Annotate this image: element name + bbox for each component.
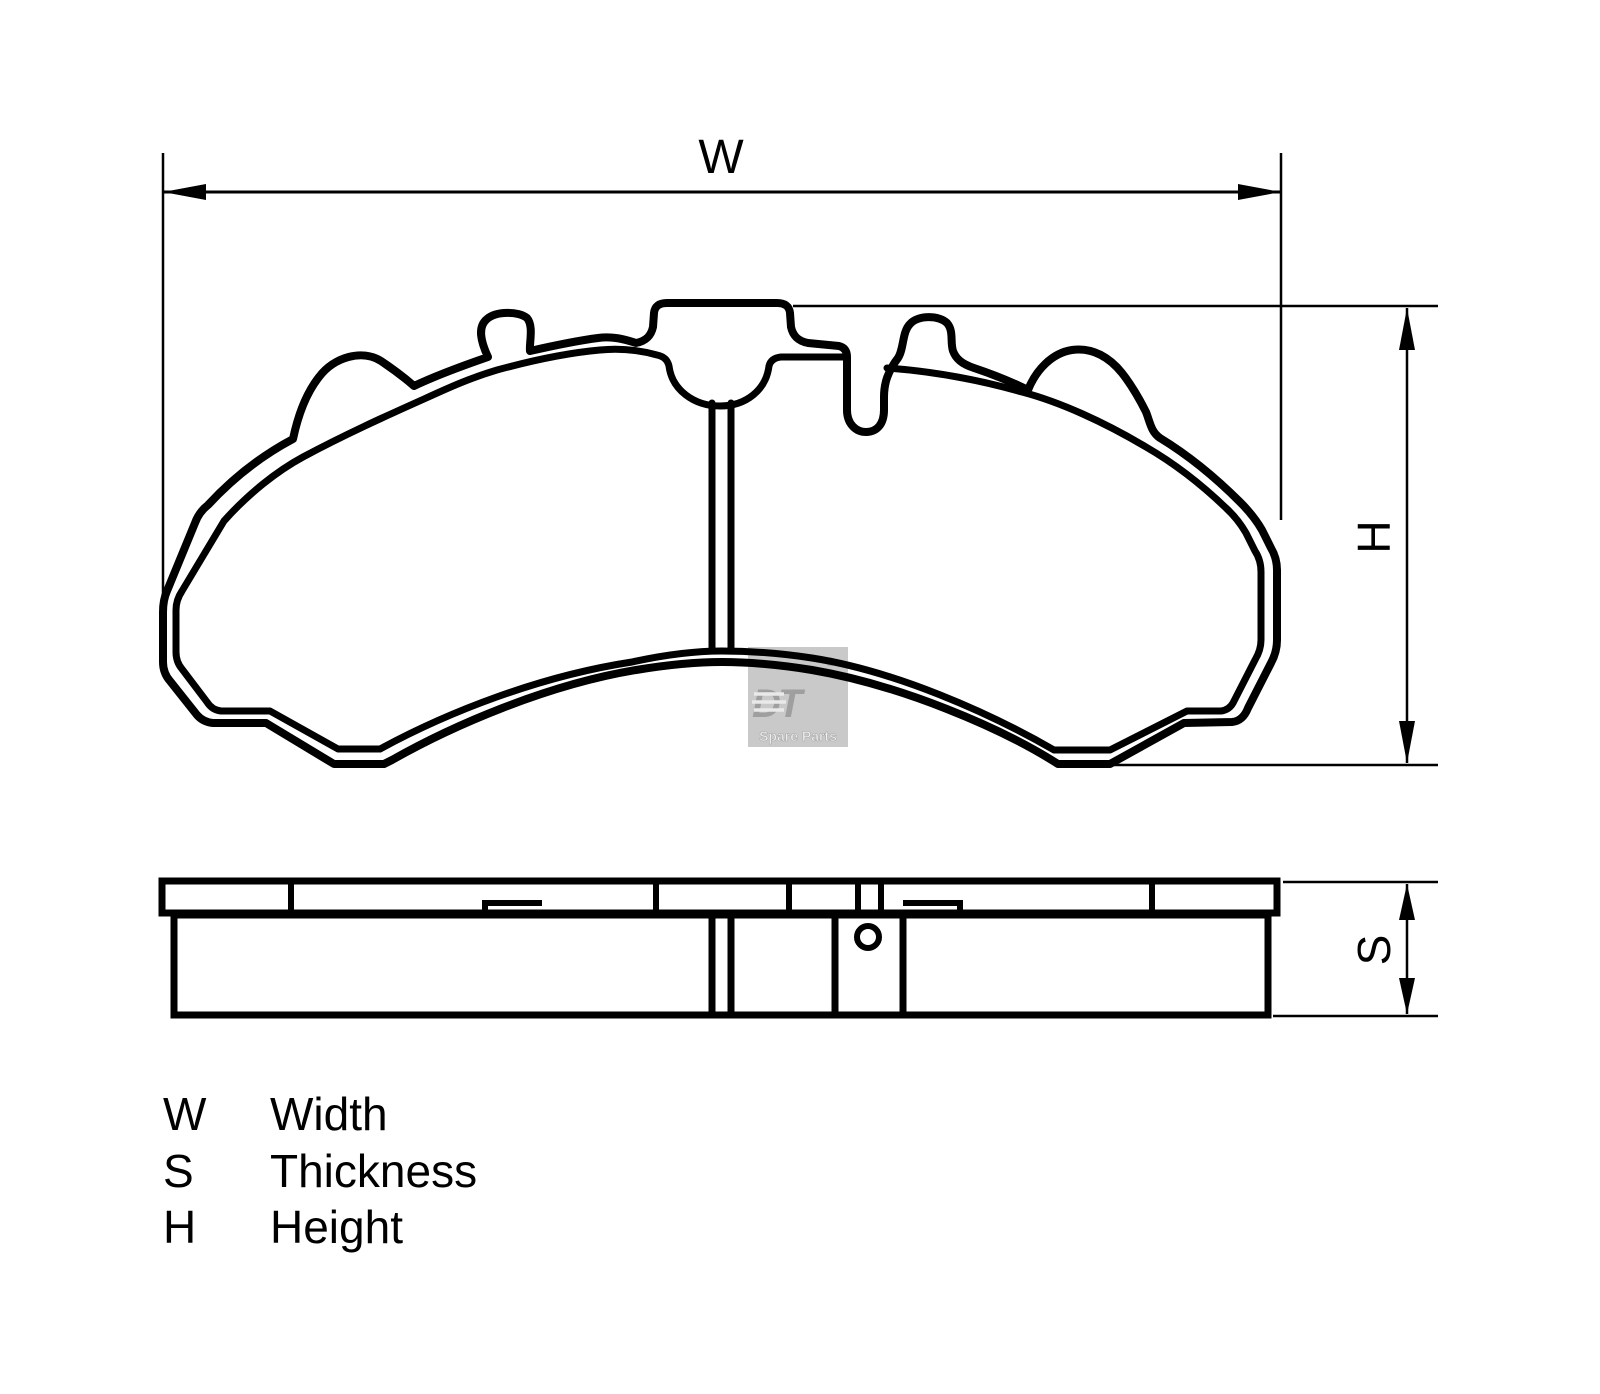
- arrow-up-icon: [1399, 884, 1415, 920]
- legend-symbol: S: [163, 1148, 270, 1195]
- legend-row-thickness: S Thickness: [163, 1148, 477, 1195]
- arrow-right-icon: [1238, 184, 1281, 200]
- height-dimension-label: H: [1348, 520, 1400, 553]
- thickness-dimension-label: S: [1348, 935, 1400, 966]
- legend-label: Height: [270, 1204, 403, 1251]
- arrow-up-icon: [1399, 308, 1415, 350]
- pad-front-view: [163, 303, 1277, 764]
- friction-material-block: [174, 915, 1268, 1015]
- watermark-tagline: Spare Parts: [759, 728, 837, 744]
- pad-center-slot: [712, 403, 731, 650]
- legend-label: Thickness: [270, 1148, 477, 1195]
- legend-row-width: W Width: [163, 1091, 388, 1138]
- pad-friction-material-outline: [176, 349, 1261, 750]
- wear-indicator-hole: [857, 926, 879, 948]
- strip-segment-lines: [291, 881, 1152, 913]
- legend-row-height: H Height: [163, 1204, 403, 1251]
- pad-side-view: [162, 881, 1277, 1015]
- width-dimension-label: W: [698, 131, 744, 184]
- watermark-brand-logo: DT: [752, 682, 806, 726]
- arrow-left-icon: [163, 184, 206, 200]
- backing-plate-strip: [162, 881, 1277, 913]
- brake-pad-technical-drawing: DT ® Spare Parts: [0, 0, 1600, 1394]
- legend-label: Width: [270, 1091, 388, 1138]
- legend-symbol: W: [163, 1091, 270, 1138]
- pad-backing-plate-outline: [163, 303, 1277, 764]
- arrow-down-icon: [1399, 721, 1415, 763]
- dimension-thickness: S: [1273, 882, 1438, 1016]
- arrow-down-icon: [1399, 978, 1415, 1014]
- legend-symbol: H: [163, 1204, 270, 1251]
